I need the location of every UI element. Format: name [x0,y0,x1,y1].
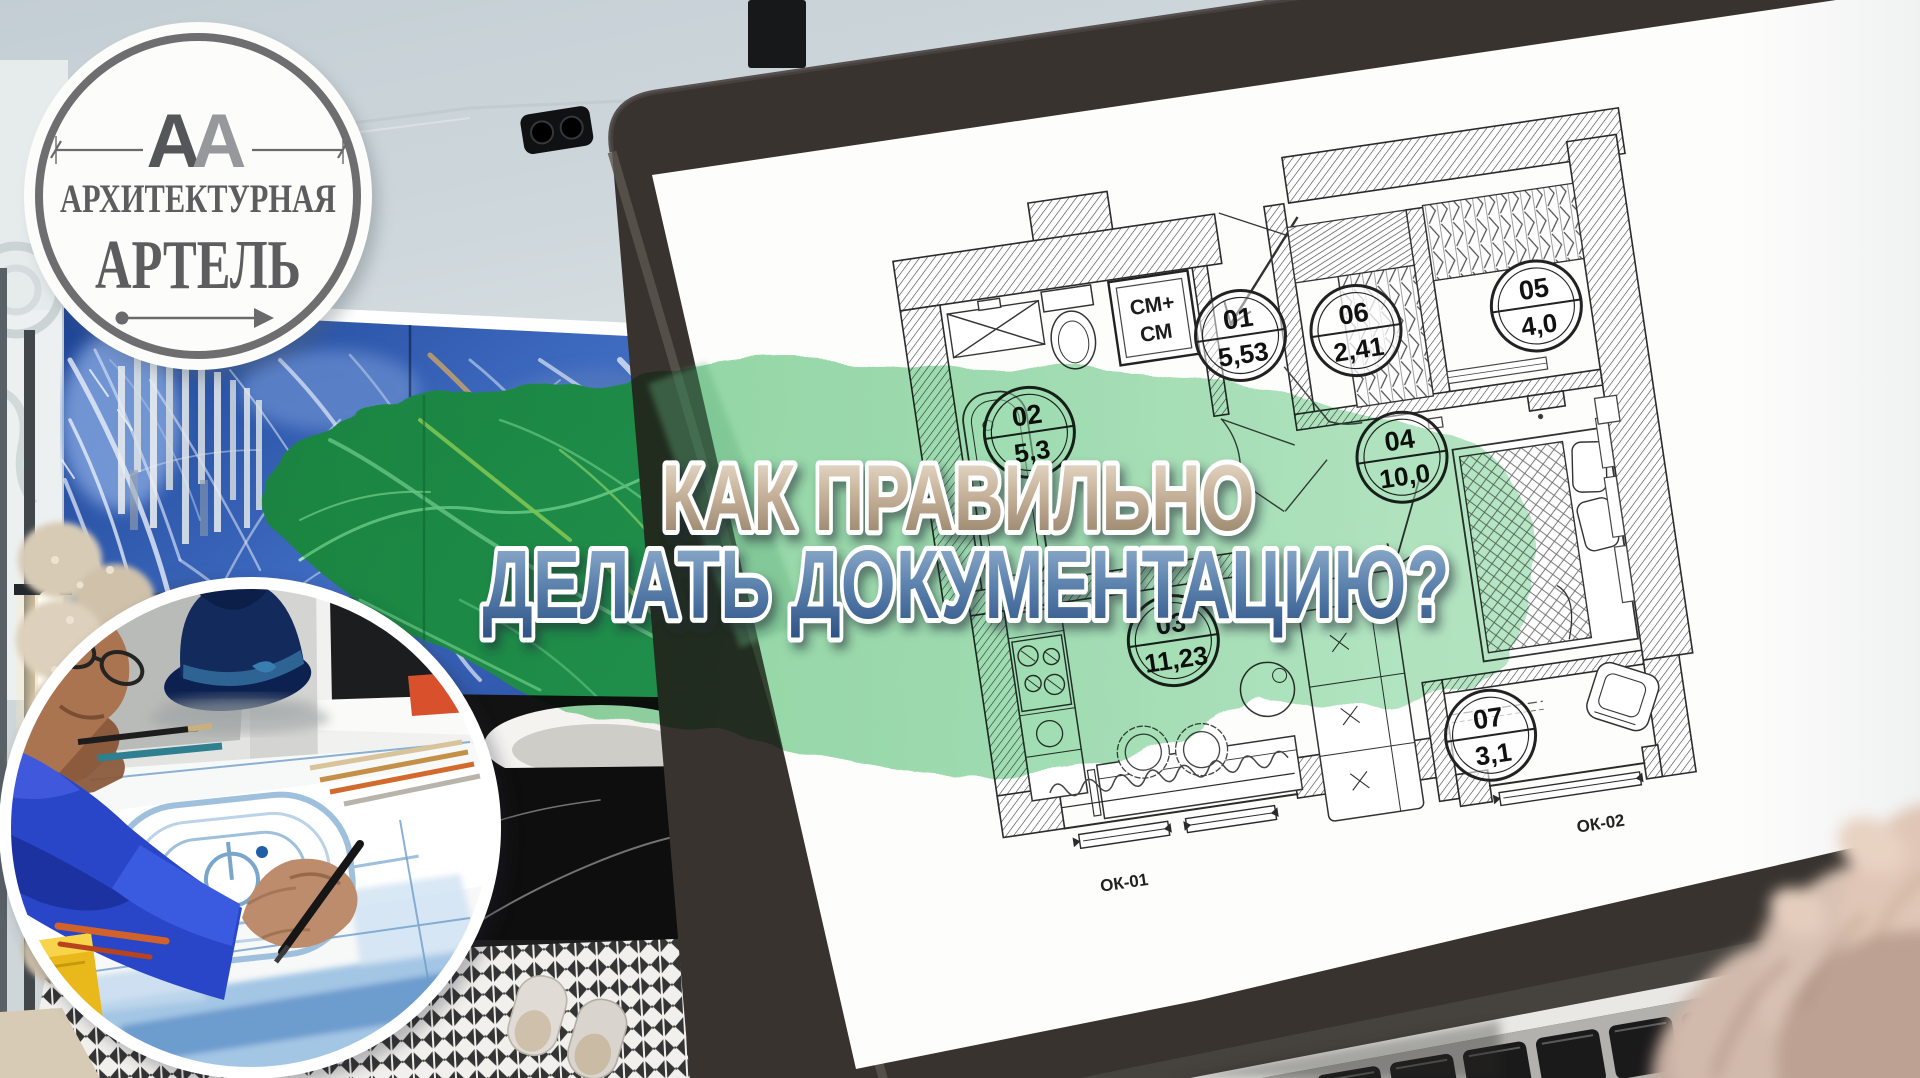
svg-text:АРХИТЕКТУРНАЯ: АРХИТЕКТУРНАЯ [60,176,336,221]
svg-text:ДЕЛАТЬ ДОКУМЕНТАЦИЮ?: ДЕЛАТЬ ДОКУМЕНТАЦИЮ? [483,530,1450,639]
svg-text:АРТЕЛЬ: АРТЕЛЬ [95,227,301,304]
svg-text:СМ: СМ [1139,320,1174,347]
svg-text:01: 01 [1221,302,1255,336]
svg-text:06: 06 [1336,297,1370,331]
svg-text:3,1: 3,1 [1473,737,1513,772]
svg-text:4,0: 4,0 [1519,307,1559,342]
svg-text:А: А [192,99,247,184]
svg-text:05: 05 [1517,272,1551,306]
svg-text:07: 07 [1471,701,1505,735]
